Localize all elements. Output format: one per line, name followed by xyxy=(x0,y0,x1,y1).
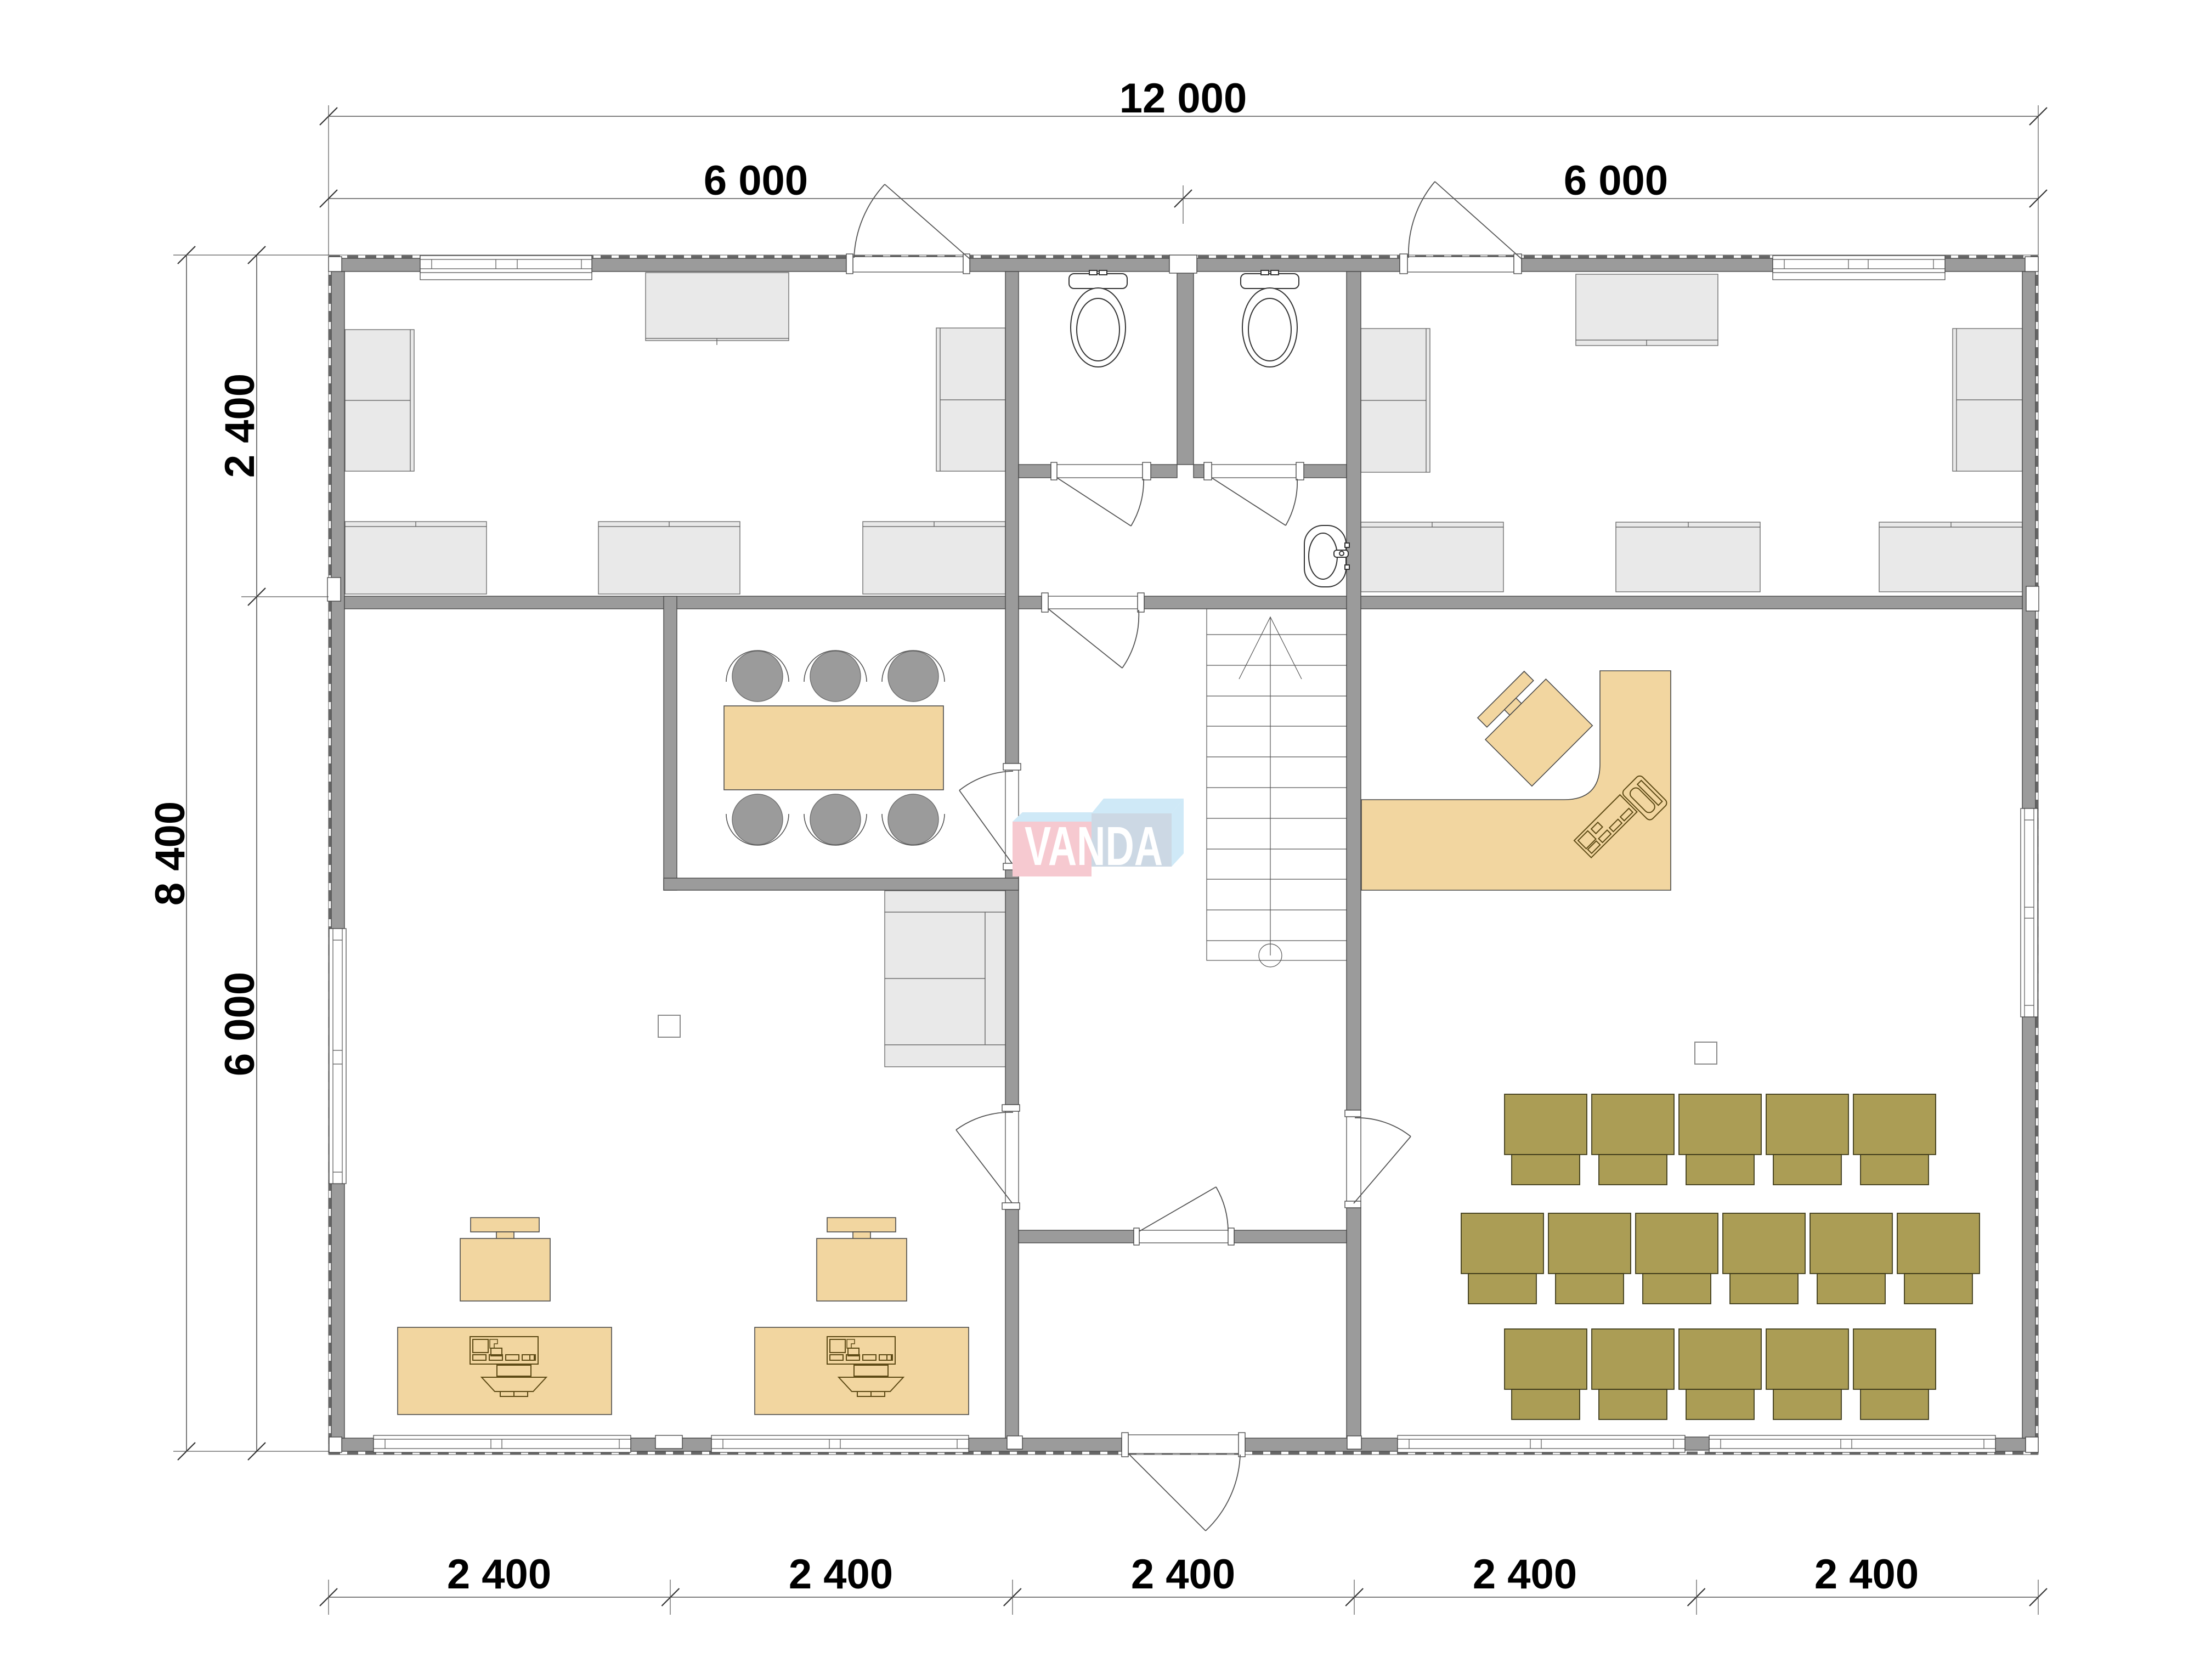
svg-text:2 400: 2 400 xyxy=(447,1551,551,1598)
svg-text:6 000: 6 000 xyxy=(1564,157,1668,204)
svg-text:2 400: 2 400 xyxy=(1131,1551,1235,1598)
svg-text:6 000: 6 000 xyxy=(217,972,263,1076)
svg-text:6 000: 6 000 xyxy=(704,157,808,204)
svg-text:VANDA: VANDA xyxy=(1025,816,1163,877)
svg-text:12 000: 12 000 xyxy=(1119,75,1247,122)
svg-text:2 400: 2 400 xyxy=(217,374,263,478)
svg-text:2 400: 2 400 xyxy=(789,1551,893,1598)
svg-text:8 400: 8 400 xyxy=(147,801,194,906)
svg-text:2 400: 2 400 xyxy=(1814,1551,1919,1598)
svg-text:2 400: 2 400 xyxy=(1473,1551,1577,1598)
